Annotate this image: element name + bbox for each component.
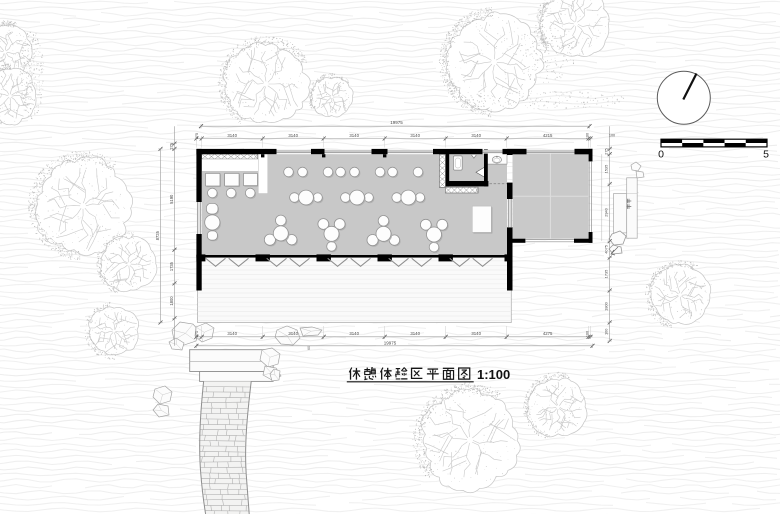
svg-text:3140: 3140 bbox=[227, 133, 237, 138]
svg-text:3140: 3140 bbox=[288, 331, 298, 336]
svg-text:3140: 3140 bbox=[410, 331, 420, 336]
svg-text:275: 275 bbox=[195, 133, 199, 139]
svg-text:4275: 4275 bbox=[543, 331, 553, 336]
svg-text:3140: 3140 bbox=[471, 331, 481, 336]
svg-text:3140: 3140 bbox=[410, 133, 420, 138]
svg-text:3140: 3140 bbox=[471, 133, 481, 138]
svg-text:60: 60 bbox=[307, 346, 311, 350]
svg-text:100: 100 bbox=[585, 133, 589, 139]
svg-text:275: 275 bbox=[195, 331, 199, 337]
svg-text:19975: 19975 bbox=[390, 120, 403, 125]
svg-text:3140: 3140 bbox=[227, 331, 237, 336]
svg-text:4215: 4215 bbox=[543, 133, 553, 138]
svg-text:3140: 3140 bbox=[288, 133, 298, 138]
svg-text:3140: 3140 bbox=[349, 331, 359, 336]
svg-text:3140: 3140 bbox=[349, 133, 359, 138]
